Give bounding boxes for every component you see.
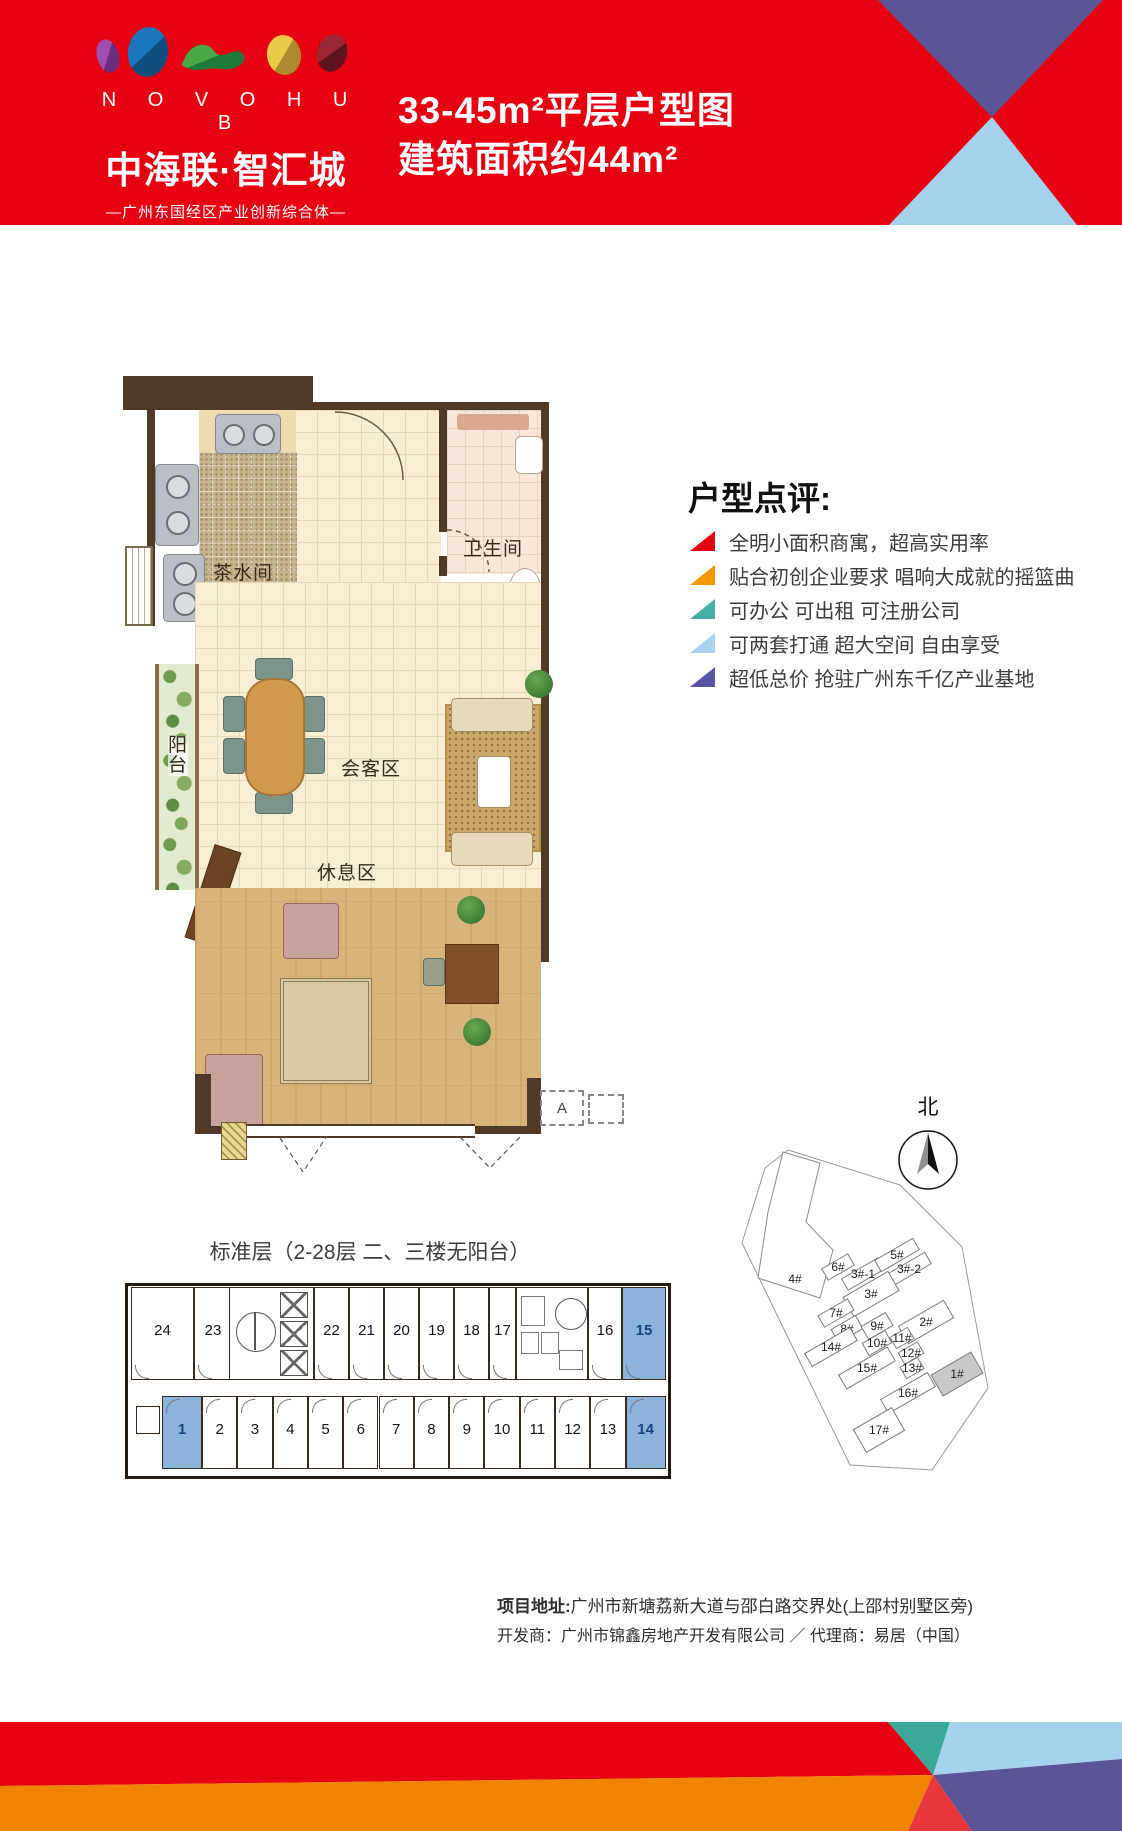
bullet-triangle-icon [690, 633, 715, 653]
unit-cell-11: 11 [520, 1396, 555, 1469]
site-building-label: 5# [890, 1248, 904, 1262]
unit-cell-16: 16 [588, 1287, 622, 1380]
unit-cell-21: 21 [349, 1287, 384, 1380]
unit-cell-23: 23 [194, 1287, 232, 1380]
unit-cell-17: 17 [489, 1287, 516, 1380]
label-balcony: 阳台 [168, 736, 188, 776]
wc-fixture [521, 1296, 545, 1326]
unit-number: 16 [589, 1322, 621, 1339]
developer-line: 开发商：广州市锦鑫房地产开发有限公司 ／ 代理商：易居（中国） [497, 1622, 973, 1652]
unit-number: 8 [415, 1421, 448, 1438]
review-bullet: 贴合初创企业要求 唱响大成就的摇篮曲 [690, 558, 1020, 592]
unit-number: 24 [132, 1322, 193, 1339]
unit-number: 18 [455, 1322, 488, 1339]
unit-cell-9: 9 [449, 1396, 484, 1469]
band-red [0, 1722, 933, 1786]
standard-floor-caption: 标准层（2-28层 二、三楼无阳台） [150, 1236, 590, 1266]
floor-plan: 茶水间 卫生间 会客区 阳台 休息区 [95, 318, 550, 1140]
site-building-label: 16# [898, 1386, 918, 1400]
floor-strip: 242322212019181716151234567891011121314 [125, 1283, 671, 1479]
unit-cell-1: 1 [162, 1396, 202, 1469]
unit-number: 13 [591, 1421, 624, 1438]
project-address-line: 项目地址:广州市新塘荔新大道与邵白路交界处(上邵村别墅区旁) [497, 1592, 973, 1622]
stairwell-icon [236, 1312, 276, 1352]
unit-number: 12 [556, 1421, 589, 1438]
label-rest-area: 休息区 [317, 858, 377, 885]
unit-cell-3: 3 [237, 1396, 272, 1469]
address-label: 项目地址: [497, 1597, 571, 1616]
unit-cell-5: 5 [308, 1396, 343, 1469]
bullet-triangle-icon [690, 599, 715, 619]
site-building-label: 9# [870, 1319, 884, 1333]
unit-number: 15 [623, 1322, 665, 1339]
door-swing-marks [200, 1130, 600, 1190]
label-meeting-area: 会客区 [341, 754, 401, 781]
annotation-a-label: A [557, 1100, 567, 1117]
site-building-label: 3# [864, 1287, 878, 1301]
unit-cell-24: 24 [131, 1287, 194, 1380]
lightblue-triangle [889, 117, 1077, 225]
bullet-text: 贴合初创企业要求 唱响大成就的摇篮曲 [729, 561, 1075, 590]
site-building-label: 3#-1 [851, 1267, 875, 1281]
site-building-label: 4# [788, 1272, 802, 1286]
footer-color-band [0, 1722, 1122, 1831]
elevator-icon [280, 1321, 308, 1347]
unit-number: 20 [385, 1322, 418, 1339]
unit-number: 17 [490, 1322, 515, 1339]
poster: { "header": { "logo_letters": "N O V O H… [0, 0, 1122, 1831]
stair-elevator-block [229, 1287, 314, 1380]
address-value: 广州市新塘荔新大道与邵白路交界处(上邵村别墅区旁) [571, 1597, 973, 1616]
site-building-label: 7# [829, 1306, 843, 1320]
review-bullet: 全明小面积商寓，超高实用率 [690, 524, 1020, 558]
footer-info: 项目地址:广州市新塘荔新大道与邵白路交界处(上邵村别墅区旁) 开发商：广州市锦鑫… [497, 1592, 973, 1652]
unit-number: 9 [450, 1421, 483, 1438]
unit-cell-20: 20 [384, 1287, 419, 1380]
bullet-triangle-icon [690, 531, 715, 551]
unit-cell-18: 18 [454, 1287, 489, 1380]
bullet-triangle-icon [690, 667, 715, 687]
unit-cell-14: 14 [626, 1396, 666, 1469]
brand-logo: N O V O H U B 中海联·智汇城 —广州东国经区产业创新综合体— [82, 24, 370, 222]
unit-number: 2 [203, 1421, 236, 1438]
site-building-label: 2# [919, 1315, 933, 1329]
unit-number: 22 [315, 1322, 348, 1339]
unit-cell-19: 19 [419, 1287, 454, 1380]
unit-cell-2: 2 [202, 1396, 237, 1469]
unit-cell-4: 4 [273, 1396, 308, 1469]
site-building-label: 13# [902, 1361, 922, 1375]
entrance-notch [136, 1406, 160, 1434]
unit-number: 5 [309, 1421, 342, 1438]
site-building-label: 10# [867, 1336, 887, 1350]
unit-cell-6: 6 [343, 1396, 378, 1469]
review-bullets: 全明小面积商寓，超高实用率贴合初创企业要求 唱响大成就的摇篮曲可办公 可出租 可… [690, 524, 1020, 694]
unit-number: 1 [163, 1421, 201, 1438]
site-building-label: 6# [831, 1260, 845, 1274]
unit-cell-22: 22 [314, 1287, 349, 1380]
unit-cell-13: 13 [590, 1396, 625, 1469]
review-heading: 户型点评: [688, 472, 831, 520]
logo-letters: N O V O H U B [92, 89, 370, 135]
site-building-label: 3#-2 [897, 1262, 921, 1276]
unit-number: 3 [238, 1421, 271, 1438]
annotation-box-2 [588, 1094, 624, 1124]
header-banner: N O V O H U B 中海联·智汇城 —广州东国经区产业创新综合体— 33… [0, 0, 1122, 225]
bullet-triangle-icon [690, 565, 715, 585]
site-building-label: 15# [857, 1361, 877, 1375]
unit-number: 21 [350, 1322, 383, 1339]
site-building-label: 14# [821, 1340, 841, 1354]
slate-triangle [878, 0, 1103, 117]
elevator-icon [280, 1292, 308, 1318]
stairwell-icon [555, 1298, 587, 1330]
bullet-text: 超低总价 抢驻广州东千亿产业基地 [729, 663, 1035, 692]
wc-stair-block [516, 1287, 588, 1380]
wc-fixture [521, 1332, 539, 1354]
brand-name: 中海联·智汇城 [82, 140, 370, 194]
review-bullet: 超低总价 抢驻广州东千亿产业基地 [690, 660, 1020, 694]
unit-number: 4 [274, 1421, 307, 1438]
review-bullet: 可两套打通 超大空间 自由享受 [690, 626, 1020, 660]
unit-cell-12: 12 [555, 1396, 590, 1469]
unit-number: 11 [521, 1421, 554, 1438]
wc-fixture [541, 1332, 559, 1354]
page-title: 33-45m²平层户型图 建筑面积约44m² [398, 86, 735, 184]
unit-number: 10 [485, 1421, 518, 1438]
bullet-text: 全明小面积商寓，超高实用率 [729, 527, 989, 556]
label-tea-room: 茶水间 [213, 558, 273, 585]
unit-cell-15: 15 [622, 1287, 666, 1380]
site-map: 4#6#3#-15#3#-23#7#8#9#2#10#11#12#14#13#1… [625, 1085, 1005, 1485]
title-line2: 建筑面积约44m² [398, 135, 735, 184]
unit-number: 19 [420, 1322, 453, 1339]
unit-cell-10: 10 [484, 1396, 519, 1469]
unit-number: 6 [344, 1421, 377, 1438]
bullet-text: 可两套打通 超大空间 自由享受 [729, 629, 1000, 658]
site-building-label: 1# [950, 1367, 964, 1381]
label-bathroom: 卫生间 [463, 534, 523, 561]
unit-number: 23 [195, 1322, 231, 1339]
bullet-text: 可办公 可出租 可注册公司 [729, 595, 960, 624]
elevator-icon [280, 1350, 308, 1376]
annotation-a-box: A [540, 1090, 584, 1126]
logo-blobs-icon [86, 24, 366, 82]
door-arcs [95, 318, 550, 1140]
unit-number: 14 [627, 1421, 665, 1438]
wc-fixture [559, 1350, 583, 1370]
site-building-label: 11# [892, 1331, 911, 1345]
brand-tagline: —广州东国经区产业创新综合体— [82, 201, 370, 222]
site-building-label: 17# [869, 1423, 889, 1437]
title-line1: 33-45m²平层户型图 [398, 86, 735, 135]
unit-number: 7 [380, 1421, 413, 1438]
unit-cell-7: 7 [379, 1396, 414, 1469]
unit-cell-8: 8 [414, 1396, 449, 1469]
review-bullet: 可办公 可出租 可注册公司 [690, 592, 1020, 626]
